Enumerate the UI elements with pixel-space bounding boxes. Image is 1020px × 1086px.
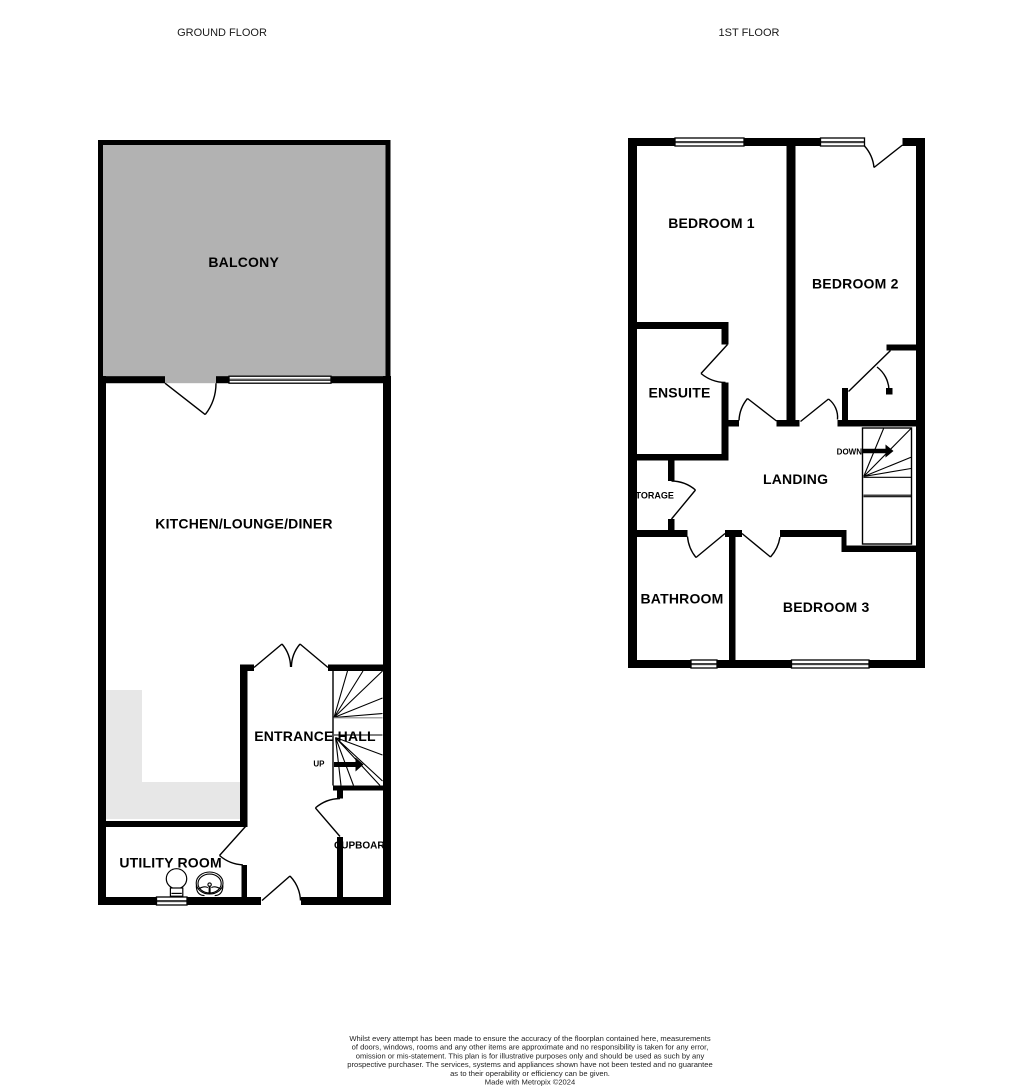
svg-text:STORAGE: STORAGE [630,491,674,501]
svg-text:KITCHEN/LOUNGE/DINER: KITCHEN/LOUNGE/DINER [155,516,332,532]
svg-text:Whilst every attempt has been: Whilst every attempt has been made to en… [349,1034,711,1043]
svg-text:Made with Metropix ©2024: Made with Metropix ©2024 [485,1078,575,1086]
svg-text:ENSUITE: ENSUITE [648,384,710,400]
svg-text:DOWN: DOWN [837,448,863,457]
svg-text:as to their operability or eff: as to their operability or efficiency ca… [450,1069,610,1078]
svg-text:GROUND FLOOR: GROUND FLOOR [177,27,267,39]
svg-text:LANDING: LANDING [763,471,828,487]
svg-text:1ST FLOOR: 1ST FLOOR [719,27,780,39]
svg-text:BEDROOM 3: BEDROOM 3 [783,599,870,615]
svg-text:omission or mis-statement. Thi: omission or mis-statement. This plan is … [356,1051,705,1060]
svg-text:of doors, windows, rooms and a: of doors, windows, rooms and any other i… [352,1043,709,1052]
svg-text:BALCONY: BALCONY [208,254,279,270]
svg-text:BEDROOM 2: BEDROOM 2 [812,276,899,292]
svg-text:CUPBOARD: CUPBOARD [334,841,392,852]
svg-text:UTILITY ROOM: UTILITY ROOM [119,854,221,870]
svg-text:prospective purchaser. The ser: prospective purchaser. The services, sys… [347,1060,712,1069]
svg-text:BEDROOM 1: BEDROOM 1 [668,215,755,231]
svg-text:BATHROOM: BATHROOM [641,591,724,607]
svg-text:ENTRANCE HALL: ENTRANCE HALL [254,728,376,744]
svg-text:UP: UP [313,760,325,769]
